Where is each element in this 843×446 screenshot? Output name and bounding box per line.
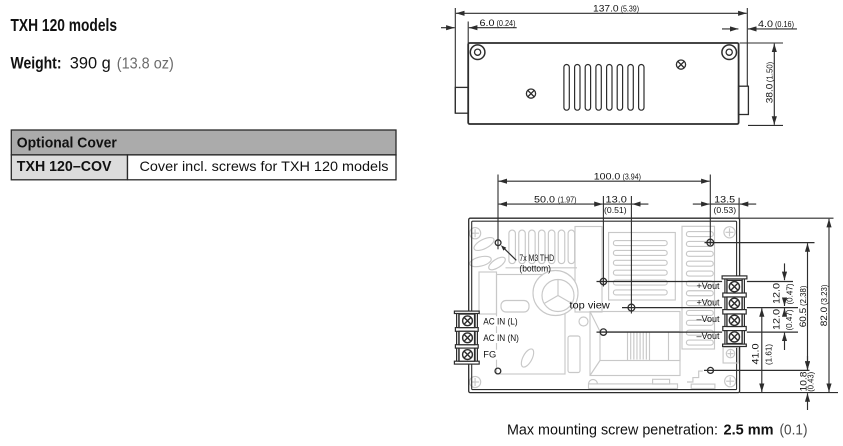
svg-text:+Vout: +Vout: [697, 281, 720, 291]
svg-text:FG: FG: [483, 350, 496, 360]
svg-text:Cover incl. screws for TXH 120: Cover incl. screws for TXH 120 models: [140, 158, 389, 174]
svg-text:(0.1): (0.1): [780, 423, 808, 439]
svg-text:100.0: 100.0: [594, 172, 621, 183]
svg-text:(0.51): (0.51): [604, 206, 627, 215]
svg-text:(0.53): (0.53): [714, 206, 737, 215]
svg-text:(3.94): (3.94): [623, 173, 642, 182]
svg-text:390 g: 390 g: [70, 53, 111, 72]
svg-text:137.0: 137.0: [593, 4, 619, 15]
svg-text:–Vout: –Vout: [697, 331, 720, 341]
svg-text:–Vout: –Vout: [697, 314, 720, 324]
svg-text:13.5: 13.5: [714, 194, 735, 205]
svg-text:(0.47): (0.47): [785, 309, 794, 330]
svg-text:Weight:: Weight:: [11, 53, 62, 72]
svg-text:(1.50): (1.50): [766, 61, 775, 82]
svg-text:TXH 120–COV: TXH 120–COV: [17, 159, 112, 175]
svg-text:+Vout: +Vout: [697, 297, 720, 307]
svg-text:(5.39): (5.39): [621, 5, 640, 14]
svg-text:(bottom): (bottom): [519, 263, 551, 273]
svg-text:13.0: 13.0: [606, 194, 627, 205]
svg-text:38.0: 38.0: [765, 84, 776, 104]
svg-text:7x M3 THD: 7x M3 THD: [519, 253, 554, 263]
svg-text:6.0: 6.0: [480, 18, 495, 29]
svg-text:4.0: 4.0: [758, 19, 773, 30]
svg-text:41.0: 41.0: [750, 344, 761, 365]
svg-text:(0.16): (0.16): [775, 20, 794, 29]
svg-text:(0.47): (0.47): [785, 283, 794, 304]
svg-text:(0.43): (0.43): [807, 372, 816, 392]
svg-text:2.5 mm: 2.5 mm: [724, 423, 774, 439]
svg-text:(0.24): (0.24): [497, 19, 516, 28]
svg-text:top view: top view: [570, 299, 611, 311]
svg-text:(2.38): (2.38): [799, 285, 808, 306]
svg-text:Optional Cover: Optional Cover: [17, 135, 117, 152]
svg-text:(1.61): (1.61): [765, 344, 774, 365]
svg-text:TXH 120 models: TXH 120 models: [11, 15, 118, 35]
svg-text:60.5: 60.5: [798, 308, 809, 328]
svg-text:AC IN (L): AC IN (L): [483, 316, 517, 326]
svg-text:12.0: 12.0: [771, 283, 782, 304]
svg-text:(13.8 oz): (13.8 oz): [117, 55, 174, 72]
svg-text:(3.23): (3.23): [820, 284, 829, 305]
svg-text:(1.97): (1.97): [558, 195, 577, 204]
svg-text:12.0: 12.0: [772, 309, 783, 330]
svg-text:82.0: 82.0: [819, 307, 830, 327]
svg-text:AC IN (N): AC IN (N): [483, 333, 519, 343]
svg-text:Max mounting screw penetration: Max mounting screw penetration:: [507, 423, 718, 439]
svg-text:50.0: 50.0: [534, 194, 555, 205]
